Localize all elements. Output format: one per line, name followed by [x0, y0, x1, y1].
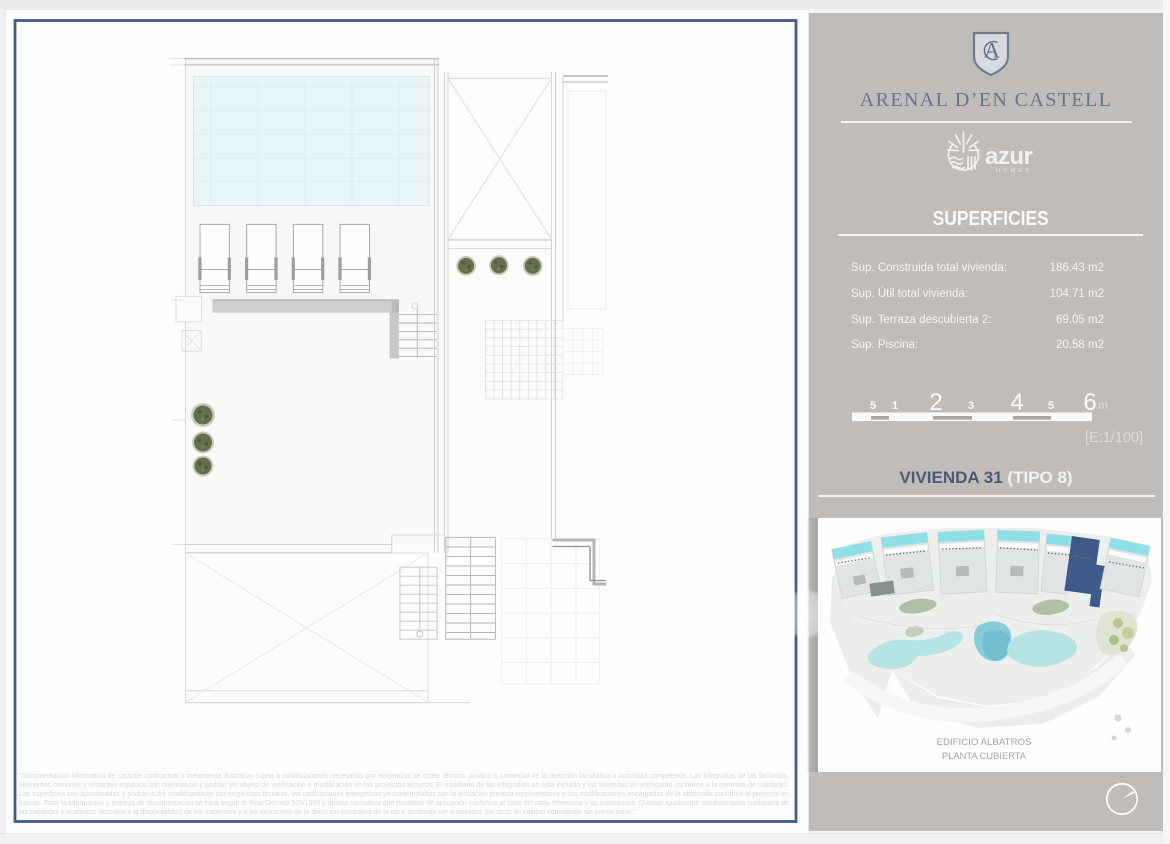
svg-text:3: 3: [968, 400, 974, 412]
svg-text:EDIFICIO ALBATROS: EDIFICIO ALBATROS: [937, 737, 1032, 748]
svg-text:azur: azur: [985, 143, 1033, 170]
svg-text:5: 5: [870, 400, 876, 412]
svg-text:2: 2: [929, 390, 942, 416]
svg-text:4: 4: [1010, 390, 1023, 416]
svg-text:5: 5: [1048, 400, 1054, 412]
svg-text:HOMES: HOMES: [996, 168, 1032, 174]
svg-text:6: 6: [1083, 390, 1096, 416]
svg-text:1: 1: [892, 400, 898, 412]
svg-text:PLANTA CUBIERTA: PLANTA CUBIERTA: [942, 751, 1027, 762]
svg-text:m: m: [1098, 398, 1108, 412]
